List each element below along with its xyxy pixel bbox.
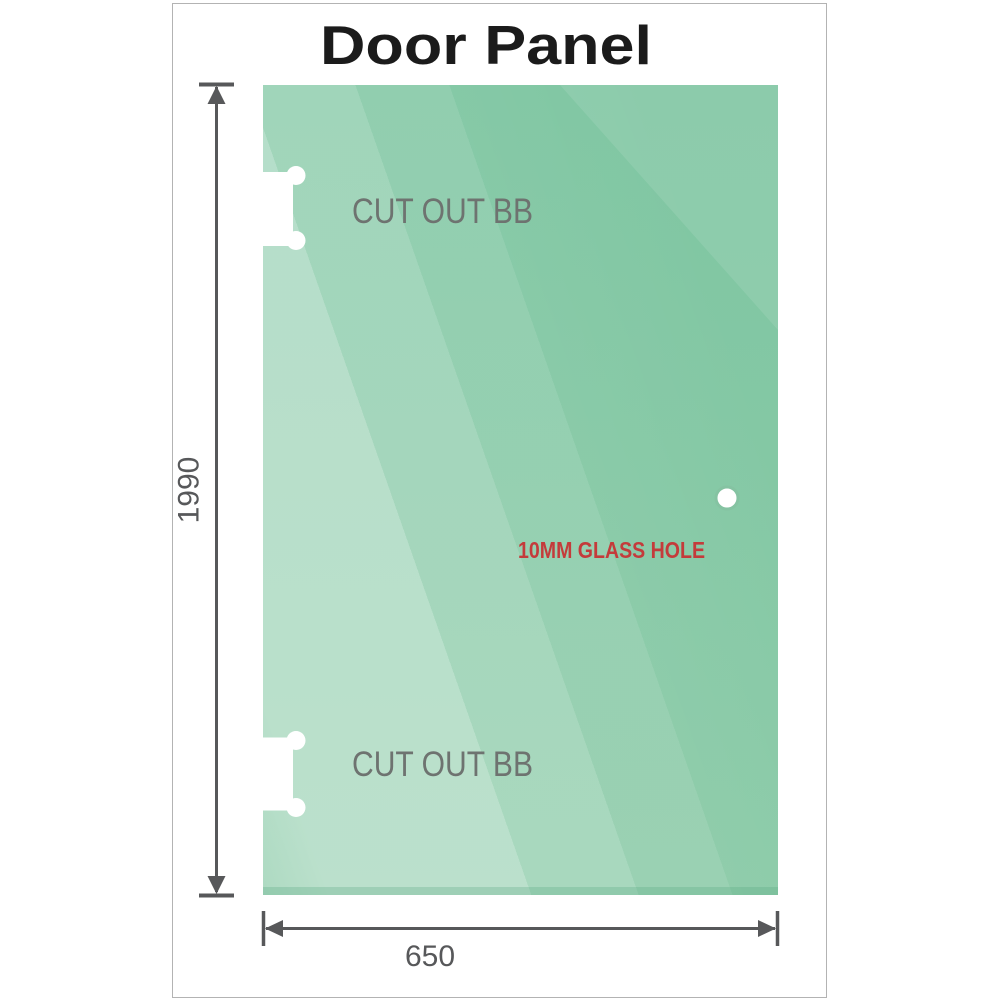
glass-panel-bottom-edge — [263, 887, 778, 895]
door-panel-drawing-page: Door Panel CUT OUT BB CUT OUT BB 10MM GL… — [0, 0, 1000, 1000]
page-title: Door Panel — [320, 14, 652, 76]
hinge-cutout-bottom-lower-lobe — [287, 798, 306, 817]
glass-hole — [716, 487, 738, 509]
cutout-label-bottom: CUT OUT BB — [352, 745, 533, 784]
height-dimension-value: 1990 — [173, 457, 206, 524]
hinge-cutout-top-lower-lobe — [287, 231, 306, 250]
door-panel-diagram: Door Panel CUT OUT BB CUT OUT BB 10MM GL… — [0, 0, 1000, 1000]
hinge-cutout-top-upper-lobe — [287, 166, 306, 185]
hinge-cutout-bottom-upper-lobe — [287, 731, 306, 750]
cutout-label-top: CUT OUT BB — [352, 192, 533, 231]
glass-hole-label: 10MM GLASS HOLE — [518, 537, 705, 563]
hinge-cutout-bottom-notch — [263, 738, 293, 811]
width-dimension-value: 650 — [405, 940, 455, 973]
